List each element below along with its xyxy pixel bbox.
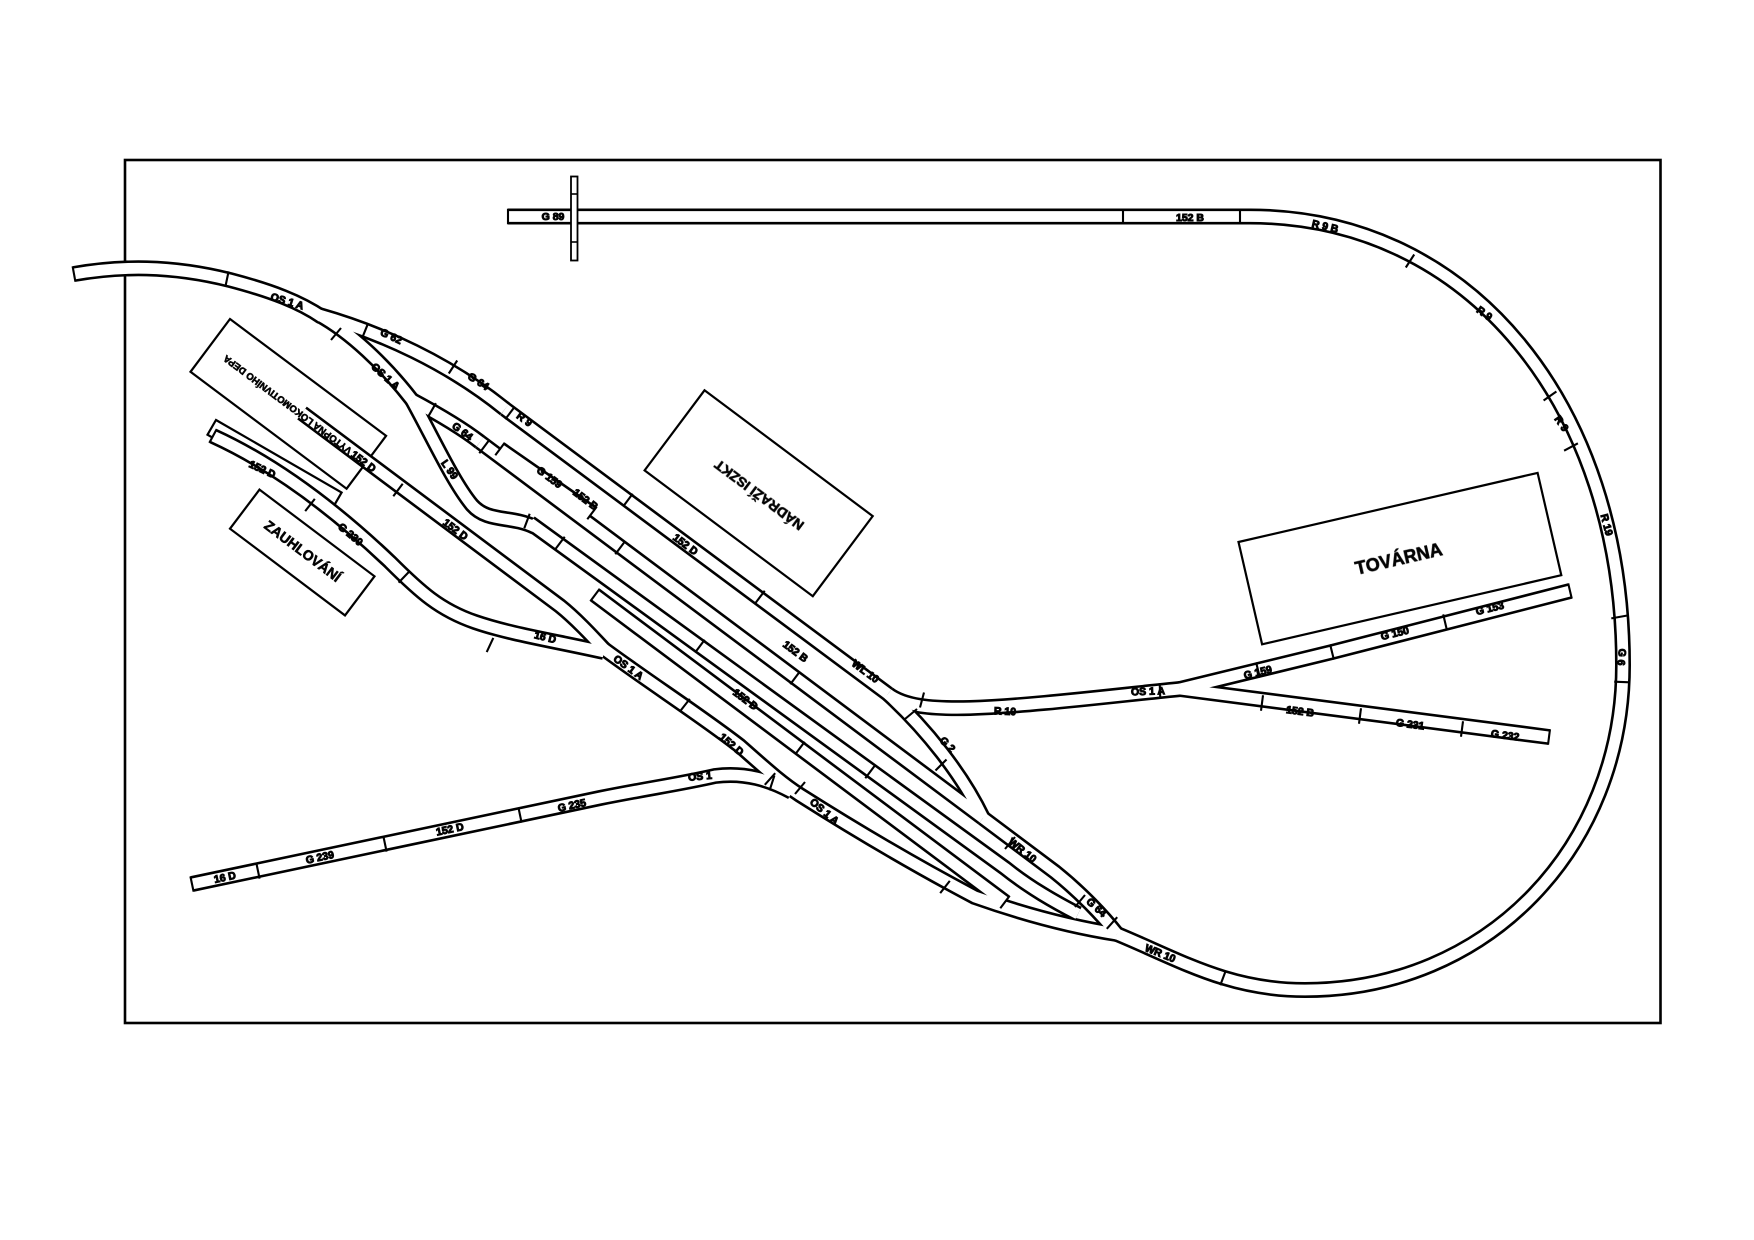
svg-text:R 10: R 10: [994, 705, 1017, 718]
svg-text:152 B: 152 B: [1176, 212, 1204, 224]
svg-text:OS 1: OS 1: [688, 770, 713, 784]
svg-text:G 89: G 89: [542, 211, 565, 223]
svg-text:OS 1 A: OS 1 A: [1131, 685, 1166, 698]
svg-text:G 6: G 6: [1614, 648, 1627, 666]
